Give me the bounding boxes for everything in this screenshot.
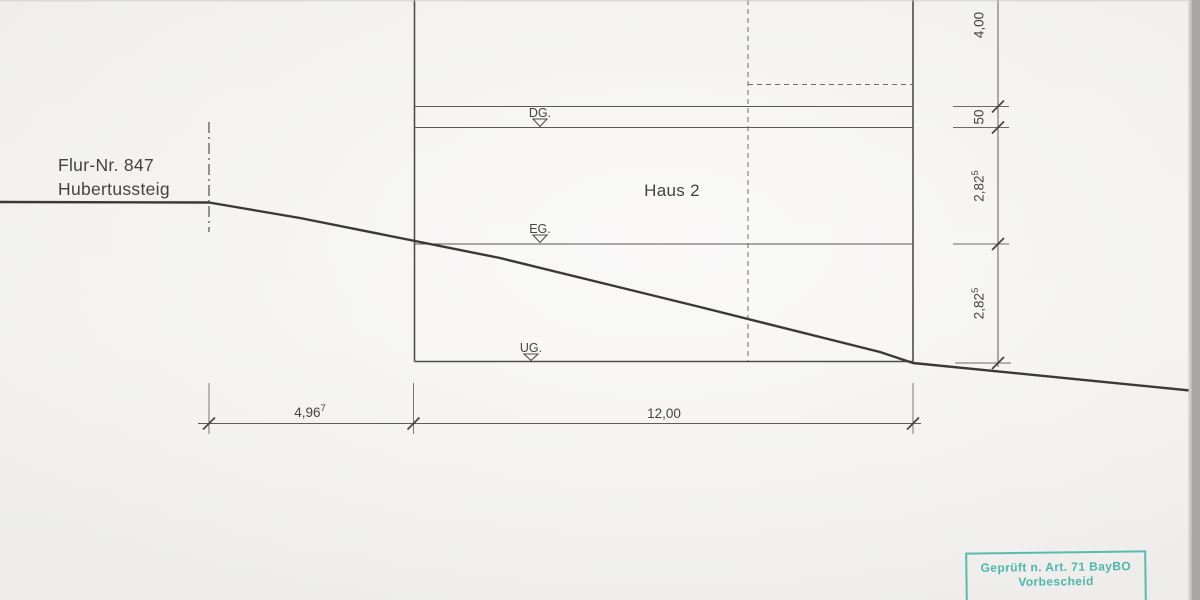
dimension-building-width-value: 12,00 bbox=[647, 406, 681, 421]
scan-right-edge-inner bbox=[1189, 0, 1192, 600]
dg-level-triangle-icon bbox=[533, 119, 547, 127]
level-marker-ug: UG. bbox=[520, 341, 542, 361]
eg-level-label: EG. bbox=[529, 222, 551, 236]
dg-level-label: DG. bbox=[529, 106, 551, 120]
vertical-dimension-chain: 4,00 50 2,825 2,825 bbox=[953, 0, 1011, 369]
scan-top-edge bbox=[0, 0, 1200, 2]
dimension-eg-storey-height-value: 2,825 bbox=[970, 170, 987, 202]
site-label: Flur-Nr. 847 Hubertussteig bbox=[58, 155, 170, 199]
dimension-setback-value: 4,967 bbox=[294, 403, 326, 420]
ug-level-label: UG. bbox=[520, 341, 542, 355]
level-marker-dg: DG. bbox=[529, 106, 551, 127]
approval-stamp-line2: Vorbescheid bbox=[1018, 574, 1094, 589]
scanned-site-section-sheet: Flur-Nr. 847 Hubertussteig Haus 2 DG. EG… bbox=[0, 0, 1200, 600]
level-marker-eg: EG. bbox=[529, 222, 551, 243]
dimension-ug-storey-height-value: 2,825 bbox=[970, 288, 987, 320]
dimension-slab-thickness-value: 50 bbox=[972, 109, 987, 124]
building-name-label: Haus 2 bbox=[644, 181, 700, 200]
approval-stamp-line1: Geprüft n. Art. 71 BayBO bbox=[981, 559, 1132, 575]
eg-level-triangle-icon bbox=[533, 235, 547, 243]
section-drawing-canvas: Flur-Nr. 847 Hubertussteig Haus 2 DG. EG… bbox=[0, 0, 1200, 600]
horizontal-dimension-chain: 4,967 12,00 bbox=[198, 383, 921, 434]
scan-right-edge-outer bbox=[1192, 0, 1200, 600]
street-name-label: Hubertussteig bbox=[58, 179, 170, 199]
plot-number-label: Flur-Nr. 847 bbox=[58, 155, 154, 175]
approval-stamp: Geprüft n. Art. 71 BayBO Vorbescheid bbox=[966, 551, 1146, 600]
terrain-profile-line bbox=[0, 202, 1200, 392]
dimension-top-height-value: 4,00 bbox=[972, 12, 987, 38]
